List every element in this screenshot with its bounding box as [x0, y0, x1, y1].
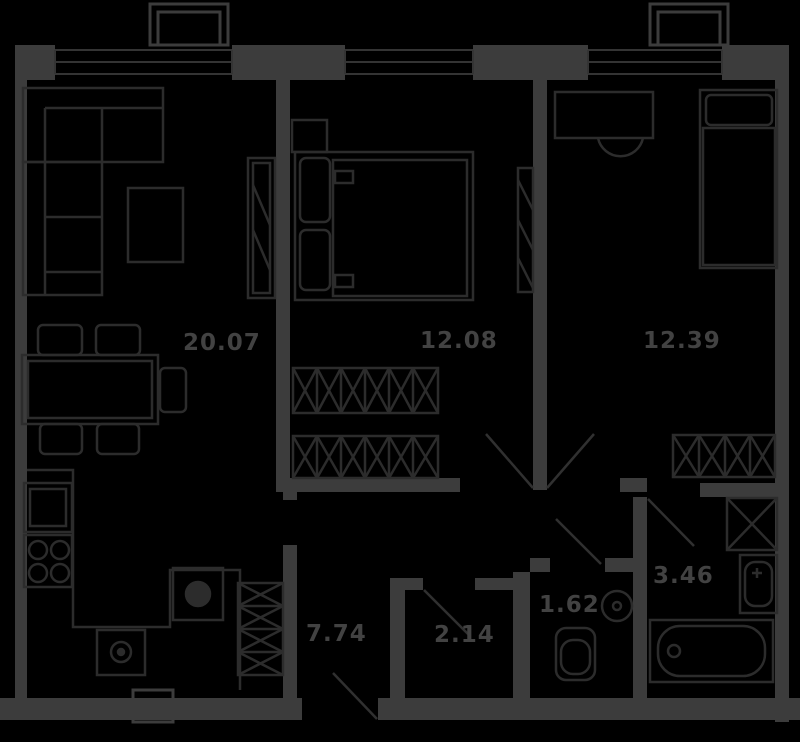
wardrobe-bedroom-1-row1: [293, 368, 438, 413]
wardrobe-bedroom-2: [673, 435, 775, 477]
room-label-hallway: 7.74: [306, 621, 367, 647]
tv-stand: [248, 158, 275, 298]
kitchen-counter: [27, 470, 240, 690]
duct-box-right: [650, 4, 728, 45]
wc-washbasin: [602, 591, 632, 621]
room-label-wc: 1.62: [539, 592, 600, 618]
room-label-bedroom-1: 12.08: [420, 328, 498, 354]
door-wc: [556, 519, 601, 564]
duct-box-left: [150, 4, 228, 45]
desk-bedroom-2: [555, 92, 653, 138]
window-bedroom-1: [345, 50, 473, 74]
room-label-bedroom-2: 12.39: [643, 328, 721, 354]
door-bedroom-2: [547, 434, 594, 488]
kitchen-cabinet: [238, 583, 283, 675]
kitchen-stove: [24, 535, 72, 587]
corner-sofa: [23, 88, 163, 295]
wardrobe-bedroom-1-row2: [293, 436, 438, 478]
bathroom-washbasin: [740, 555, 777, 613]
window-bedroom-2: [588, 50, 722, 74]
door-bathroom: [648, 499, 694, 546]
dining-chairs: [38, 325, 186, 454]
floor-plan-svg: 20.07 12.08 12.39 7.74 2.14 1.62 3.46: [0, 0, 800, 742]
door-bedroom-1: [486, 434, 533, 488]
washing-machine: [727, 498, 777, 550]
toilet: [556, 628, 595, 680]
window-living-room: [55, 50, 232, 74]
nightstand-bedroom-1: [292, 120, 327, 152]
room-label-bathroom: 3.46: [653, 563, 714, 589]
door-entrance: [333, 673, 377, 719]
dining-table: [22, 355, 158, 424]
bed-bedroom-2: [700, 90, 777, 268]
kitchen-hob-unit: [97, 630, 145, 675]
floor-plan-image: 20.07 12.08 12.39 7.74 2.14 1.62 3.46: [0, 0, 800, 742]
room-label-living-room: 20.07: [183, 330, 261, 356]
desk-chair: [598, 138, 643, 156]
coffee-table: [128, 188, 183, 262]
radiator-bedroom-1: [518, 168, 533, 292]
room-label-storage: 2.14: [434, 622, 495, 648]
bathtub: [650, 620, 773, 682]
kitchen-fridge: [24, 483, 72, 532]
windows: [55, 50, 722, 74]
kitchen-sink: [173, 568, 223, 620]
bed-bedroom-1: [295, 152, 473, 300]
